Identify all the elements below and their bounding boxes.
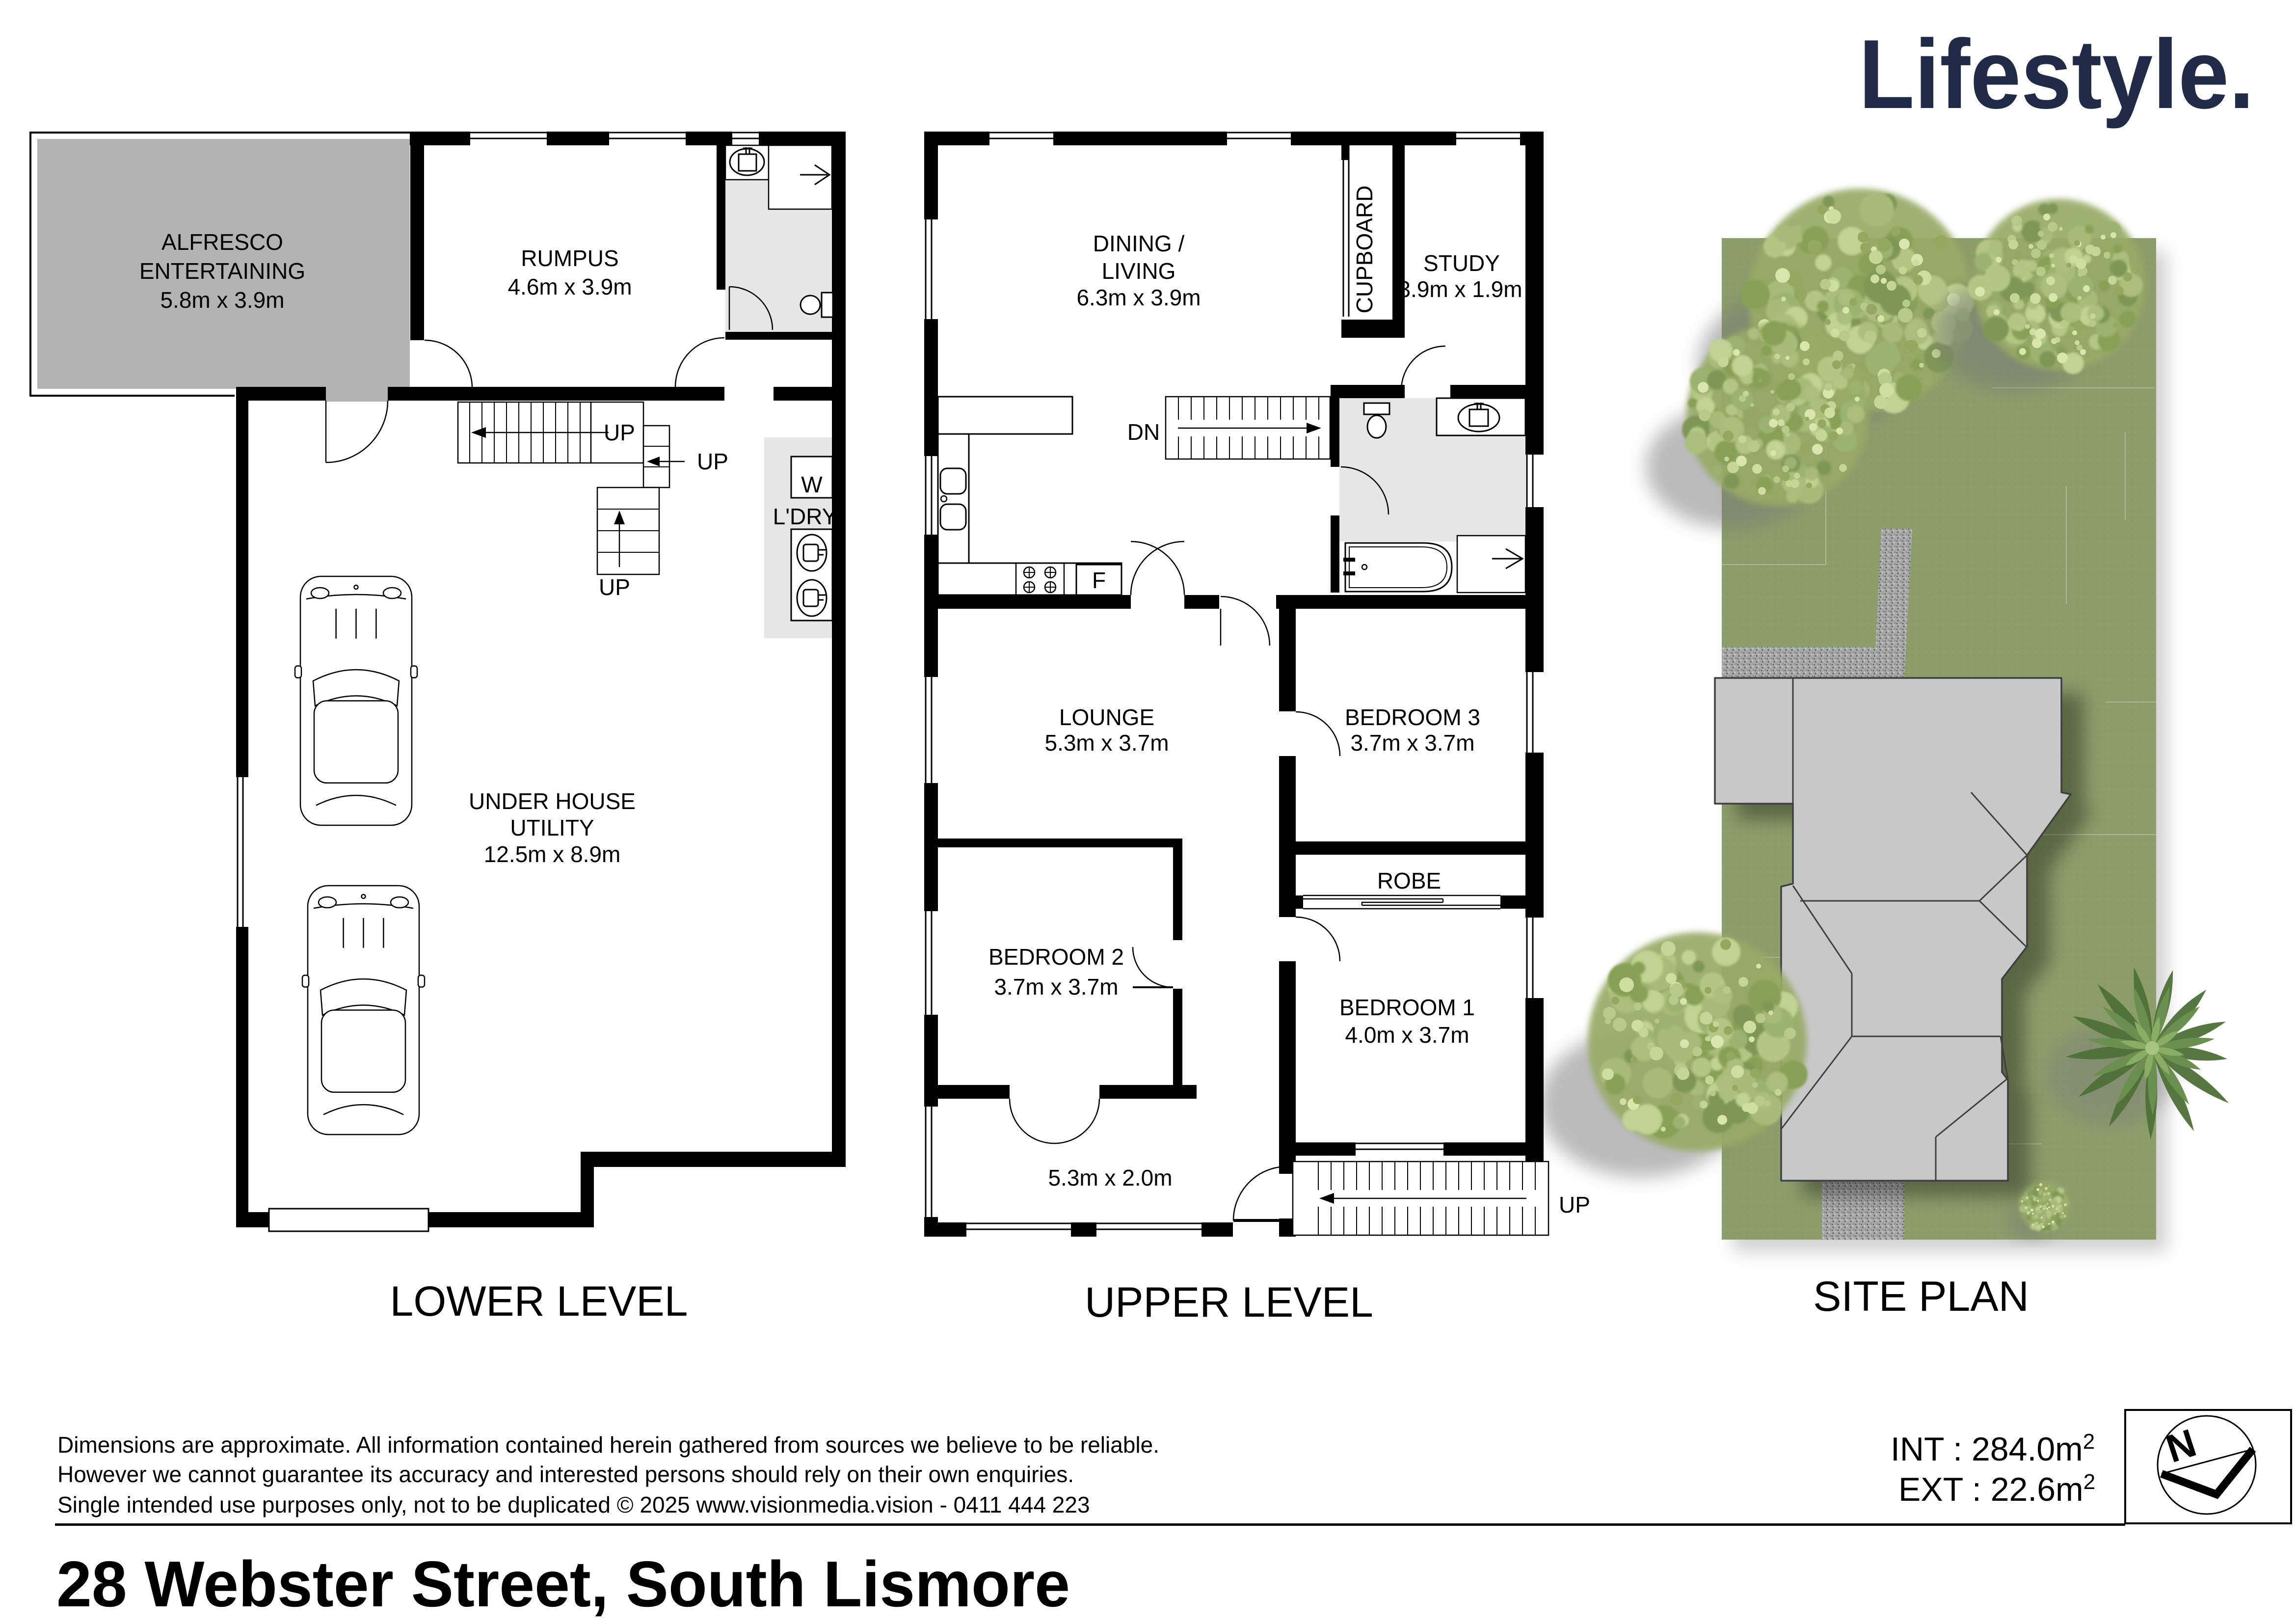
svg-text:4.0m x 3.7m: 4.0m x 3.7m bbox=[1345, 1022, 1469, 1048]
svg-text:SITE PLAN: SITE PLAN bbox=[1813, 1273, 2029, 1320]
svg-text:STUDY: STUDY bbox=[1423, 250, 1500, 276]
svg-text:ENTERTAINING: ENTERTAINING bbox=[139, 258, 305, 284]
svg-text:Dimensions are approximate. Al: Dimensions are approximate. All informat… bbox=[57, 1432, 1159, 1458]
svg-text:CUPBOARD: CUPBOARD bbox=[1352, 186, 1377, 314]
svg-text:DN: DN bbox=[1127, 419, 1160, 445]
svg-text:UP: UP bbox=[697, 449, 728, 474]
svg-text:4.6m x 3.9m: 4.6m x 3.9m bbox=[507, 274, 632, 299]
svg-text:5.8m x 3.9m: 5.8m x 3.9m bbox=[160, 287, 284, 313]
svg-text:ALFRESCO: ALFRESCO bbox=[161, 229, 283, 255]
svg-text:BEDROOM 3: BEDROOM 3 bbox=[1345, 704, 1480, 730]
svg-text:DINING /: DINING / bbox=[1093, 231, 1185, 256]
svg-text:BEDROOM 2: BEDROOM 2 bbox=[988, 944, 1124, 970]
svg-text:LOWER LEVEL: LOWER LEVEL bbox=[390, 1278, 688, 1325]
svg-text:ROBE: ROBE bbox=[1377, 868, 1441, 893]
svg-text:RUMPUS: RUMPUS bbox=[521, 245, 618, 271]
svg-text:UNDER HOUSE: UNDER HOUSE bbox=[469, 788, 636, 814]
svg-text:EXT : 22.6m2: EXT : 22.6m2 bbox=[1898, 1470, 2095, 1508]
svg-text:INT : 284.0m2: INT : 284.0m2 bbox=[1891, 1430, 2095, 1468]
svg-text:However we cannot guarantee it: However we cannot guarantee its accuracy… bbox=[57, 1462, 1074, 1487]
svg-text:LIVING: LIVING bbox=[1102, 258, 1176, 284]
svg-text:12.5m x 8.9m: 12.5m x 8.9m bbox=[484, 841, 621, 867]
svg-text:UP: UP bbox=[599, 574, 630, 600]
svg-text:6.3m x 3.9m: 6.3m x 3.9m bbox=[1076, 285, 1201, 310]
svg-text:28 Webster Street, South Lismo: 28 Webster Street, South Lismore bbox=[56, 1548, 1070, 1620]
svg-text:Lifestyle.: Lifestyle. bbox=[1859, 20, 2254, 129]
svg-text:UPPER LEVEL: UPPER LEVEL bbox=[1085, 1279, 1373, 1326]
svg-text:UP: UP bbox=[1559, 1192, 1590, 1218]
svg-text:BEDROOM 1: BEDROOM 1 bbox=[1339, 995, 1475, 1020]
svg-text:5.3m x 3.7m: 5.3m x 3.7m bbox=[1044, 730, 1169, 756]
svg-text:3.9m x 1.9m: 3.9m x 1.9m bbox=[1398, 276, 1522, 302]
svg-text:3.7m x 3.7m: 3.7m x 3.7m bbox=[1350, 730, 1474, 756]
svg-text:F: F bbox=[1092, 568, 1106, 593]
svg-text:W: W bbox=[801, 472, 823, 497]
svg-text:LOUNGE: LOUNGE bbox=[1059, 704, 1154, 730]
svg-text:UP: UP bbox=[604, 420, 635, 445]
svg-text:Single intended use purposes o: Single intended use purposes only, not t… bbox=[57, 1492, 1090, 1517]
svg-text:3.7m x 3.7m: 3.7m x 3.7m bbox=[994, 974, 1118, 1000]
svg-text:5.3m x 2.0m: 5.3m x 2.0m bbox=[1048, 1165, 1172, 1191]
svg-text:L'DRY: L'DRY bbox=[773, 504, 837, 529]
svg-text:UTILITY: UTILITY bbox=[510, 815, 594, 840]
